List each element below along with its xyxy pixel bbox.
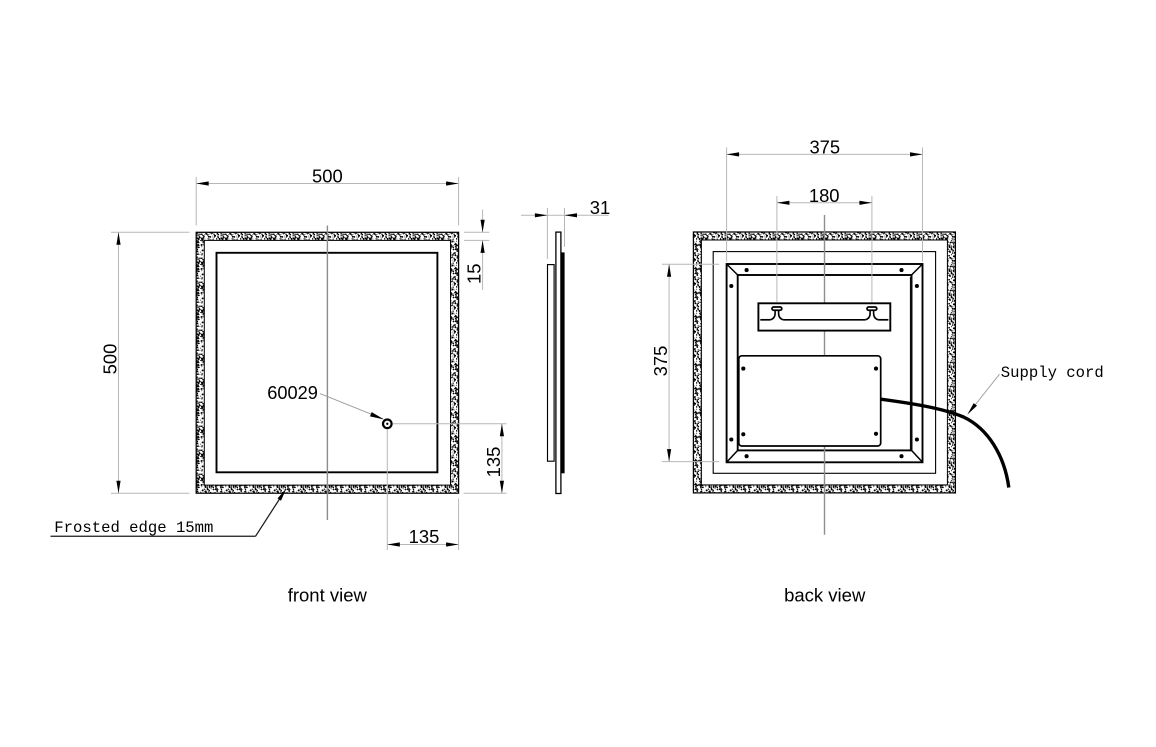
svg-text:60029: 60029 (267, 383, 318, 403)
svg-text:375: 375 (809, 136, 840, 157)
svg-text:15: 15 (463, 263, 484, 283)
svg-text:500: 500 (312, 166, 343, 187)
svg-text:Supply cord: Supply cord (1001, 364, 1104, 382)
svg-text:front view: front view (288, 585, 368, 606)
svg-text:135: 135 (409, 526, 440, 547)
svg-text:31: 31 (590, 197, 610, 218)
svg-text:Frosted edge 15mm: Frosted edge 15mm (54, 519, 213, 537)
svg-text:375: 375 (650, 346, 671, 377)
svg-text:back view: back view (784, 585, 866, 606)
svg-text:180: 180 (809, 185, 840, 206)
svg-text:135: 135 (483, 447, 504, 478)
svg-text:500: 500 (99, 344, 120, 375)
